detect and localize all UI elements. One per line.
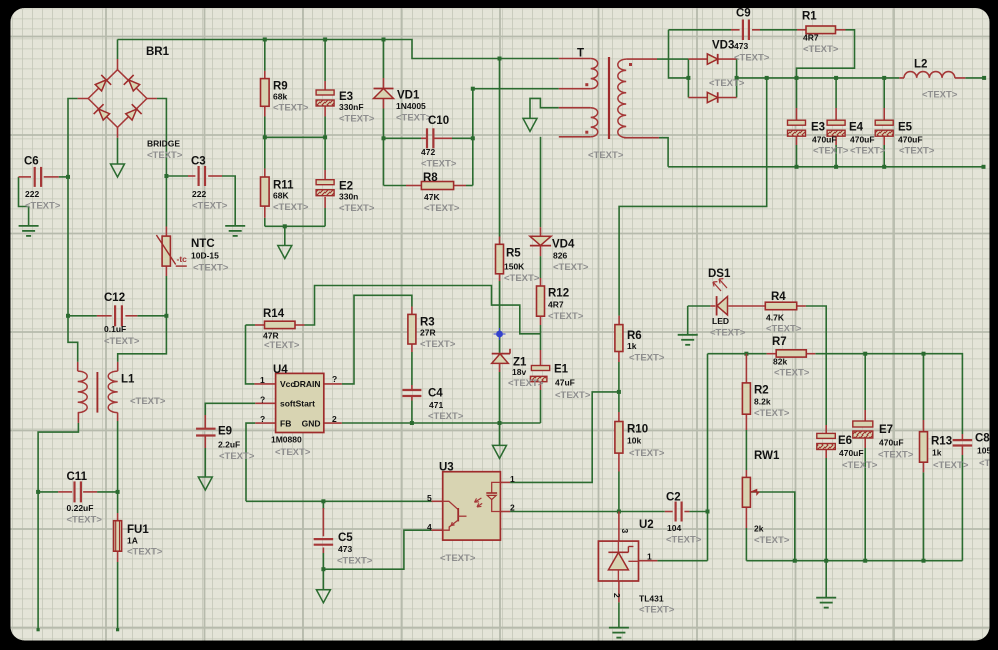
svg-text:47uF: 47uF (555, 378, 575, 388)
svg-text:C5: C5 (338, 532, 353, 544)
svg-text:R4: R4 (771, 291, 786, 303)
svg-text:C10: C10 (428, 115, 449, 127)
svg-text:<TEXT>: <TEXT> (588, 150, 624, 161)
svg-text:1k: 1k (627, 341, 637, 351)
svg-text:U4: U4 (273, 364, 288, 376)
svg-text:<TEXT>: <TEXT> (264, 340, 300, 351)
svg-text:<TEXT>: <TEXT> (273, 202, 309, 213)
svg-text:<TEXT>: <TEXT> (553, 262, 589, 273)
svg-text:8.2k: 8.2k (754, 397, 771, 407)
svg-text:<TEXT>: <TEXT> (339, 114, 375, 125)
svg-text:10k: 10k (627, 436, 641, 446)
svg-text:471: 471 (429, 400, 443, 410)
svg-text:18v: 18v (512, 367, 526, 377)
svg-text:150K: 150K (504, 262, 525, 272)
svg-text:<TEXT>: <TEXT> (639, 605, 675, 616)
svg-text:0.22uF: 0.22uF (67, 503, 94, 513)
svg-text:<TEXT>: <TEXT> (629, 448, 665, 459)
svg-text:105: 105 (977, 446, 991, 456)
svg-text:470uF: 470uF (850, 135, 875, 145)
svg-text:47R: 47R (263, 331, 279, 341)
svg-text:C3: C3 (191, 156, 206, 168)
svg-text:1M0880: 1M0880 (271, 435, 302, 445)
svg-text:<TEXT>: <TEXT> (933, 460, 969, 471)
svg-text:BRIDGE: BRIDGE (147, 139, 180, 149)
svg-text:<TEXT>: <TEXT> (922, 90, 958, 101)
svg-text:<TEXT>: <TEXT> (878, 450, 914, 461)
svg-text:2: 2 (612, 593, 622, 598)
svg-text:RW1: RW1 (754, 450, 780, 462)
svg-text:<TEXT>: <TEXT> (104, 336, 140, 347)
svg-text:E6: E6 (838, 435, 852, 447)
svg-text:L2: L2 (914, 59, 927, 71)
svg-text:VD4: VD4 (552, 239, 575, 251)
svg-text:<TEXT>: <TEXT> (774, 368, 810, 379)
svg-text:<TEXT>: <TEXT> (127, 547, 163, 558)
svg-text:E4: E4 (849, 122, 864, 134)
svg-text:472: 472 (421, 147, 435, 157)
svg-text:R7: R7 (772, 336, 787, 348)
svg-text:68K: 68K (273, 191, 289, 201)
svg-text:<TEXT>: <TEXT> (25, 201, 61, 212)
svg-text:4.7K: 4.7K (766, 313, 785, 323)
svg-text:?: ? (260, 414, 265, 424)
svg-text:?: ? (260, 395, 265, 405)
svg-text:U2: U2 (639, 519, 654, 531)
svg-text:C2: C2 (666, 492, 681, 504)
svg-text:DRAIN: DRAIN (294, 379, 321, 389)
svg-text:BR1: BR1 (146, 46, 170, 58)
svg-text:FU1: FU1 (127, 524, 149, 536)
svg-text:TL431: TL431 (639, 594, 664, 604)
svg-text:470uF: 470uF (812, 135, 837, 145)
svg-text:82k: 82k (773, 357, 787, 367)
svg-text:470uF: 470uF (839, 448, 864, 458)
svg-text:<TEXT>: <TEXT> (421, 159, 457, 170)
svg-text:4: 4 (427, 522, 432, 532)
svg-text:<TEXT>: <TEXT> (504, 273, 540, 284)
svg-text:<TEXT>: <TEXT> (548, 311, 584, 322)
svg-text:<TEXT>: <TEXT> (508, 378, 544, 389)
svg-text:<TEXT>: <TEXT> (440, 553, 476, 564)
svg-text:VD1: VD1 (397, 90, 420, 102)
svg-text:<TEXT>: <TEXT> (813, 146, 849, 157)
svg-text:<TEXT>: <TEXT> (273, 103, 309, 114)
svg-text:<TEXT>: <TEXT> (219, 451, 255, 462)
svg-text:R13: R13 (931, 436, 952, 448)
svg-text:1k: 1k (932, 448, 942, 458)
svg-text:VD3: VD3 (712, 40, 734, 52)
svg-text:1: 1 (510, 474, 515, 484)
svg-text:R14: R14 (263, 308, 285, 320)
svg-text:<TEXT>: <TEXT> (275, 447, 311, 458)
svg-text:<TEXT>: <TEXT> (147, 150, 183, 161)
svg-text:GND: GND (302, 418, 321, 428)
svg-text:222: 222 (192, 189, 206, 199)
svg-text:C12: C12 (104, 292, 125, 304)
svg-text:3: 3 (620, 529, 630, 534)
svg-text:E5: E5 (898, 122, 913, 134)
svg-text:27R: 27R (420, 328, 436, 338)
svg-text:473: 473 (338, 544, 352, 554)
svg-text:<TEXT>: <TEXT> (710, 328, 746, 339)
svg-text:E3: E3 (811, 122, 825, 134)
svg-text:C4: C4 (428, 388, 443, 400)
svg-text:<TEXT>: <TEXT> (850, 146, 886, 157)
svg-text:<TEXT>: <TEXT> (766, 324, 802, 335)
svg-text:<TEXT>: <TEXT> (339, 203, 375, 214)
svg-text:2: 2 (332, 414, 337, 424)
svg-text:222: 222 (25, 189, 39, 199)
svg-text:softStart: softStart (280, 399, 315, 409)
svg-text:?: ? (332, 374, 337, 384)
svg-text:U3: U3 (439, 462, 454, 474)
svg-text:R1: R1 (802, 11, 817, 23)
svg-text:<TEXT>: <TEXT> (555, 390, 591, 401)
svg-text:104: 104 (667, 523, 681, 533)
svg-text:4R7: 4R7 (803, 33, 819, 43)
svg-text:<TEXT>: <TEXT> (842, 460, 878, 471)
svg-text:1: 1 (260, 375, 265, 385)
svg-text:330nF: 330nF (339, 102, 364, 112)
svg-text:<TEXT>: <TEXT> (629, 353, 665, 364)
svg-text:2.2uF: 2.2uF (218, 440, 240, 450)
svg-text:<TEXT>: <TEXT> (130, 396, 166, 407)
svg-text:<TEXT>: <TEXT> (337, 556, 373, 567)
svg-text:1N4005: 1N4005 (396, 101, 426, 111)
svg-text:FB: FB (280, 418, 291, 428)
svg-text:470uF: 470uF (879, 438, 904, 448)
svg-text:E7: E7 (879, 424, 893, 436)
svg-text:2: 2 (510, 503, 515, 513)
svg-text:R5: R5 (506, 248, 521, 260)
svg-text:10D-15: 10D-15 (191, 251, 219, 261)
svg-text:R10: R10 (627, 424, 648, 436)
svg-text:L1: L1 (121, 374, 135, 386)
svg-text:<TEXT>: <TEXT> (899, 146, 935, 157)
svg-text:DS1: DS1 (708, 268, 731, 280)
svg-text:R8: R8 (423, 172, 438, 184)
svg-text:<TEXT>: <TEXT> (754, 535, 790, 546)
svg-text:C8: C8 (975, 433, 990, 445)
svg-text:2k: 2k (754, 524, 764, 534)
svg-text:R12: R12 (548, 288, 569, 300)
svg-text:C6: C6 (24, 156, 39, 168)
svg-text:330n: 330n (339, 192, 358, 202)
svg-text:<TEXT>: <TEXT> (428, 411, 464, 422)
svg-text:E9: E9 (218, 426, 232, 438)
svg-text:<TEXT>: <TEXT> (666, 535, 702, 546)
svg-text:<TEXT>: <TEXT> (420, 339, 456, 350)
svg-text:5: 5 (427, 493, 432, 503)
svg-text:47K: 47K (424, 192, 440, 202)
svg-text:4R7: 4R7 (548, 300, 564, 310)
svg-text:C11: C11 (67, 471, 88, 483)
svg-text:-tc: -tc (177, 254, 188, 264)
svg-text:1A: 1A (127, 536, 138, 546)
svg-text:<TEXT>: <TEXT> (396, 113, 432, 124)
svg-text:C9: C9 (736, 8, 751, 20)
svg-text:473: 473 (734, 41, 748, 51)
svg-text:826: 826 (553, 251, 567, 261)
svg-text:0.1uF: 0.1uF (104, 324, 126, 334)
svg-text:R2: R2 (754, 385, 769, 397)
svg-text:E1: E1 (554, 364, 569, 376)
svg-text:T: T (577, 48, 584, 60)
svg-text:<TEXT>: <TEXT> (754, 408, 790, 419)
svg-text:<TEXT>: <TEXT> (734, 53, 770, 64)
svg-text:<TEXT>: <TEXT> (192, 201, 228, 212)
svg-text:470uF: 470uF (898, 135, 923, 145)
svg-text:<TEXT>: <TEXT> (709, 78, 745, 89)
svg-text:LED: LED (712, 316, 729, 326)
svg-text:<TEXT>: <TEXT> (67, 515, 103, 526)
svg-text:1: 1 (647, 552, 652, 562)
svg-text:68k: 68k (273, 92, 287, 102)
svg-text:<TEXT>: <TEXT> (803, 44, 839, 55)
svg-text:NTC: NTC (191, 238, 215, 250)
svg-text:<TEXT>: <TEXT> (424, 203, 460, 214)
svg-text:<TEXT>: <TEXT> (193, 263, 229, 274)
